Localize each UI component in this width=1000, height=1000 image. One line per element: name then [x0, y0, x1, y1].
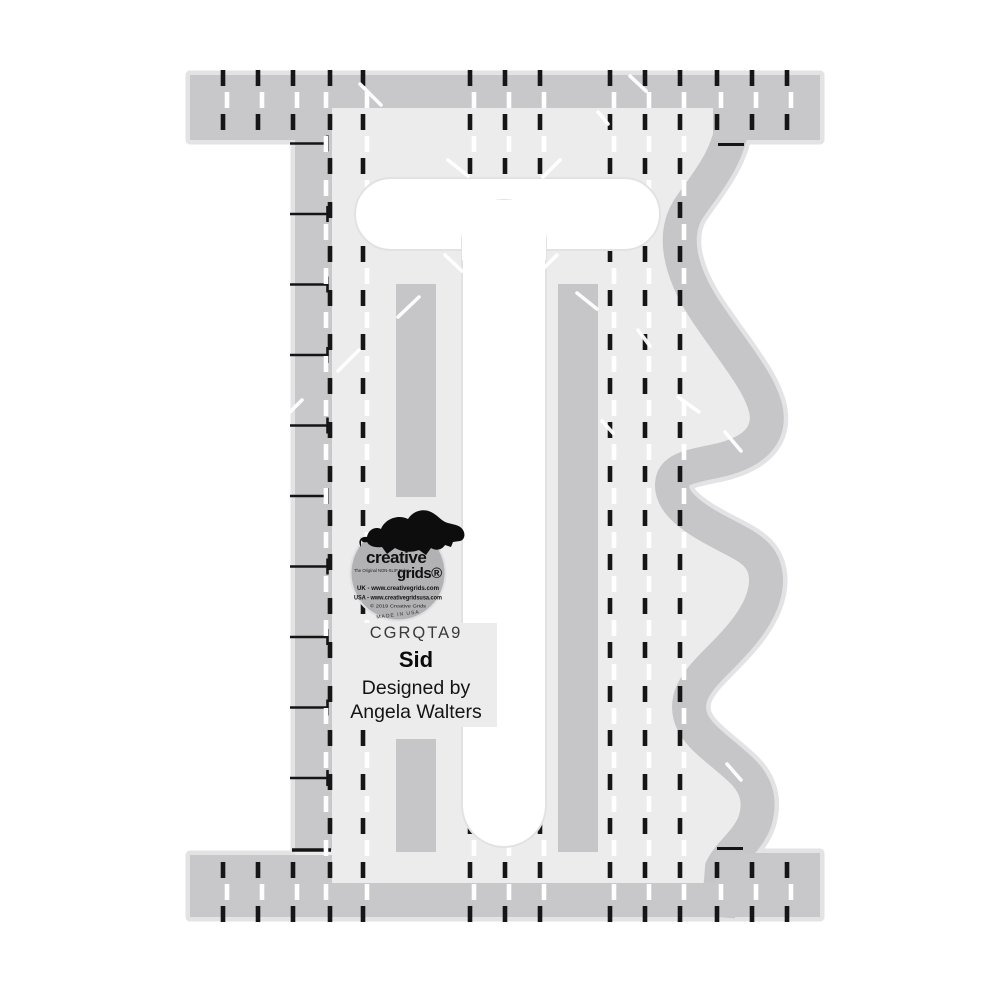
product-label: CGRQTA9 Sid Designed by Angela Walters [335, 623, 497, 727]
logo-url-usa: USA - www.creativegridsusa.com [354, 595, 442, 602]
top-flange-right-ear [713, 75, 820, 140]
product-image-canvas: creative grids® The Original NON-SLIP Ru… [0, 0, 1000, 1000]
handle-cutout-stem [462, 200, 546, 847]
handle-cutout-junction [462, 200, 546, 260]
product-sku: CGRQTA9 [370, 624, 463, 642]
top-flange-left-ear [190, 75, 295, 140]
designed-by-line: Designed by [362, 677, 471, 699]
product-name: Sid [399, 647, 433, 672]
left-channel-lower [396, 739, 436, 852]
logo-copyright: © 2019 Creative Grids [370, 603, 427, 610]
bottom-flange-right-ear [715, 853, 820, 917]
quilting-ruler-illustration: creative grids® The Original NON-SLIP Ru… [0, 0, 1000, 1000]
designer-name: Angela Walters [350, 701, 482, 723]
right-channel [558, 284, 598, 852]
left-channel-upper [396, 284, 436, 497]
logo-tagline: The Original NON-SLIP Ruler [354, 568, 409, 573]
logo-url-uk: UK - www.creativegrids.com [357, 585, 439, 592]
